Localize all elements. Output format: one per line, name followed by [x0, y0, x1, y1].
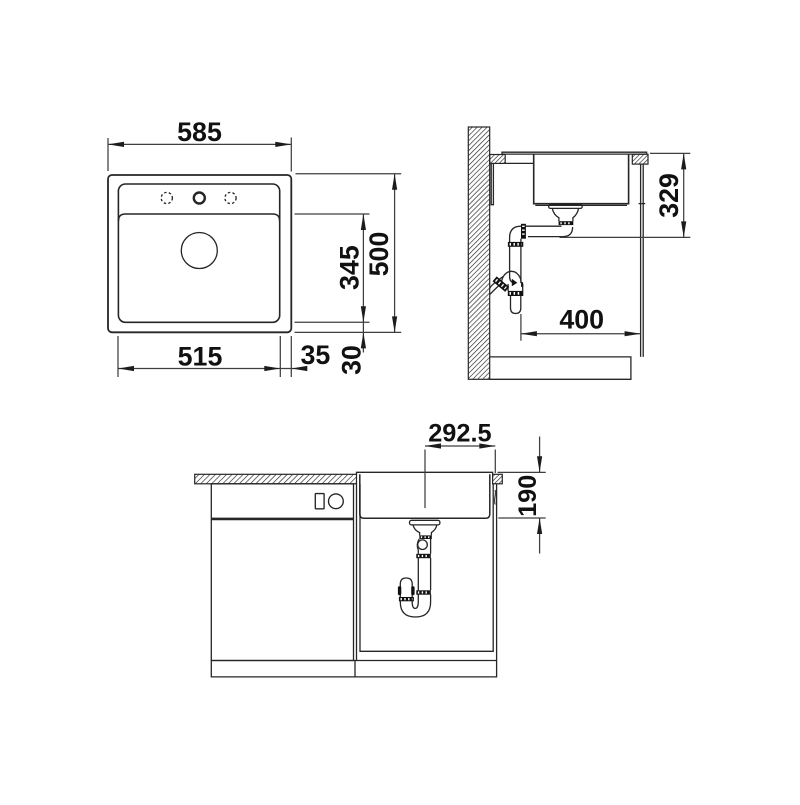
- svg-text:329: 329: [654, 173, 684, 218]
- svg-text:35: 35: [300, 340, 330, 370]
- svg-text:30: 30: [337, 345, 367, 375]
- svg-text:190: 190: [514, 475, 542, 517]
- svg-text:292.5: 292.5: [428, 419, 491, 447]
- svg-text:345: 345: [334, 245, 364, 290]
- svg-text:400: 400: [559, 305, 604, 335]
- svg-text:515: 515: [178, 342, 223, 372]
- svg-text:500: 500: [364, 232, 394, 277]
- svg-text:585: 585: [177, 117, 222, 147]
